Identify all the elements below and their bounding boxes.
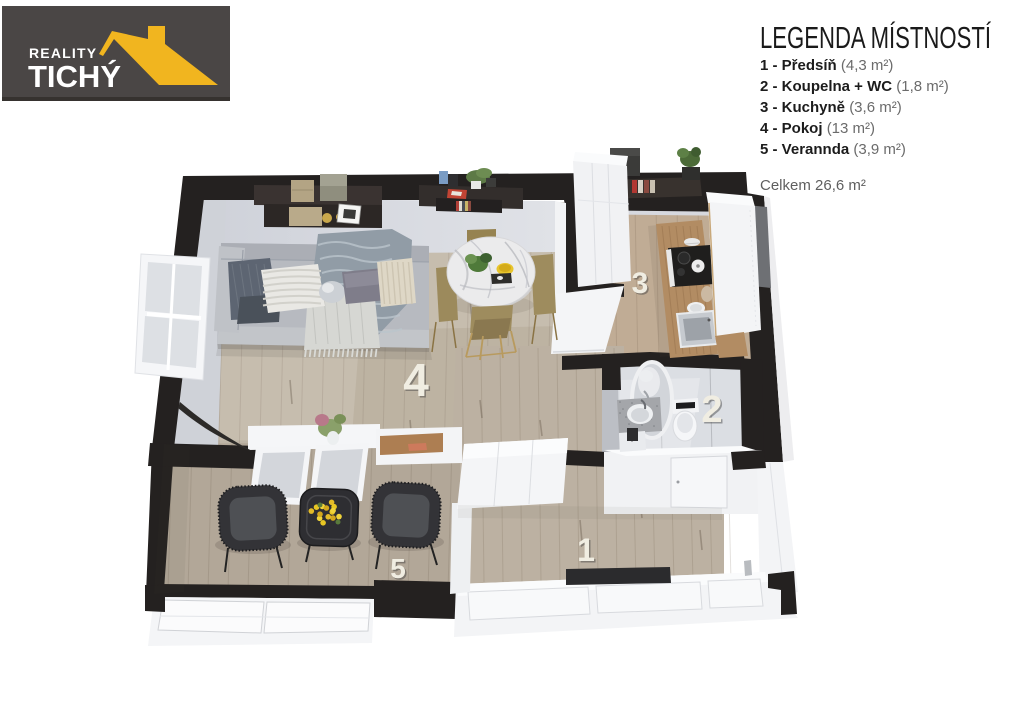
svg-text:1 - Předsíň (4,3 m²): 1 - Předsíň (4,3 m²) bbox=[760, 57, 893, 74]
svg-text:5: 5 bbox=[390, 553, 406, 584]
svg-text:4 - Pokoj (13 m²): 4 - Pokoj (13 m²) bbox=[760, 120, 875, 137]
svg-text:3: 3 bbox=[632, 267, 649, 300]
svg-text:LEGENDA MÍSTNOSTÍ: LEGENDA MÍSTNOSTÍ bbox=[760, 20, 991, 55]
svg-text:2: 2 bbox=[701, 389, 722, 431]
svg-text:3 - Kuchyně (3,6 m²): 3 - Kuchyně (3,6 m²) bbox=[760, 99, 902, 116]
svg-text:2 - Koupelna + WC (1,8 m²): 2 - Koupelna + WC (1,8 m²) bbox=[760, 78, 949, 95]
svg-text:4: 4 bbox=[403, 354, 429, 406]
svg-text:TICHÝ: TICHÝ bbox=[28, 59, 121, 94]
svg-text:Celkem 26,6 m²: Celkem 26,6 m² bbox=[760, 177, 866, 194]
svg-text:1: 1 bbox=[577, 532, 595, 568]
svg-text:5 - Verannda (3,9 m²): 5 - Verannda (3,9 m²) bbox=[760, 141, 906, 158]
